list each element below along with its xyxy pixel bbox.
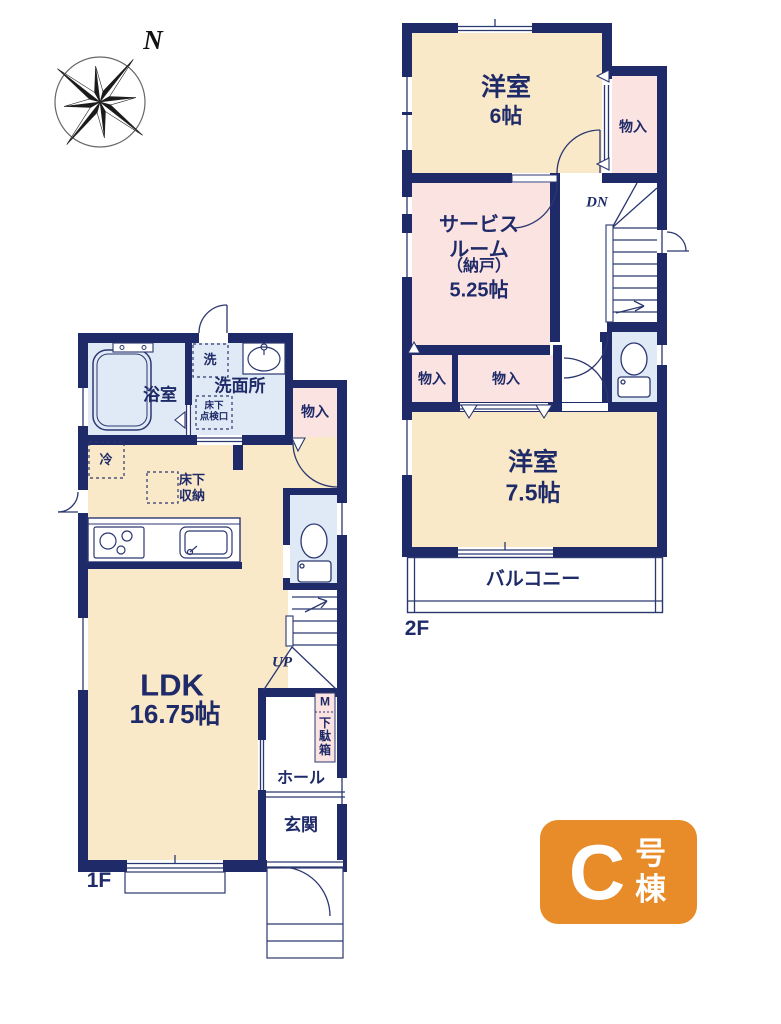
closet-1f-label: 物入 bbox=[301, 403, 329, 421]
stairs-down-label: DN bbox=[586, 194, 608, 213]
bathroom-label: 浴室 bbox=[143, 384, 177, 405]
floorplan-page: N 洋室 6帖 物入 サービス ルーム （納戸） 5.25帖 DN 物入 物入 … bbox=[0, 0, 781, 1024]
washer-label: 洗 bbox=[203, 352, 216, 368]
entrance-door-arc bbox=[281, 867, 330, 916]
service-room-area-label: 5.25帖 bbox=[450, 279, 509, 304]
floor2-label: 2F bbox=[405, 616, 430, 642]
fridge-label: 冷 bbox=[99, 452, 112, 468]
closet-top-label: 物入 bbox=[619, 118, 647, 136]
unit-badge-letter: C bbox=[569, 833, 625, 911]
bedroom6-area-label: 6帖 bbox=[490, 104, 523, 130]
hall-label: ホール bbox=[277, 769, 325, 789]
kitchen-counter-icon bbox=[88, 518, 242, 569]
shoe-cabinet-label: 下駄箱 bbox=[318, 717, 332, 757]
compass-north-label: N bbox=[143, 24, 163, 58]
bedroom6-name-label: 洋室 bbox=[481, 72, 531, 103]
closet-b-label: 物入 bbox=[492, 370, 520, 388]
entrance-label: 玄関 bbox=[284, 814, 318, 835]
floor-2f-plan bbox=[402, 19, 689, 613]
stairs-up-label: UP bbox=[272, 654, 292, 673]
closet-a-label: 物入 bbox=[418, 370, 446, 388]
entrance-porch bbox=[267, 868, 343, 958]
washroom-label: 洗面所 bbox=[215, 375, 266, 396]
underfloor-storage-label: 床下 収納 bbox=[179, 472, 205, 505]
ldk-area-label: 16.75帖 bbox=[129, 698, 220, 731]
stairs-down-icon bbox=[606, 183, 657, 322]
terrace bbox=[125, 872, 225, 893]
unit-badge: C 号棟 bbox=[540, 820, 697, 924]
service-room-subname-label: （納戸） bbox=[447, 257, 511, 277]
service-room-name-label: サービス ルーム bbox=[439, 213, 519, 263]
bedroom75-area-label: 7.5帖 bbox=[506, 479, 561, 508]
inspection-hatch-label: 床下 点検口 bbox=[200, 401, 229, 424]
meter-label: M bbox=[320, 695, 330, 710]
unit-badge-suffix: 号棟 bbox=[635, 836, 668, 907]
floor1-label: 1F bbox=[87, 868, 112, 894]
washbasin-icon bbox=[243, 343, 285, 374]
bedroom75-name-label: 洋室 bbox=[508, 447, 558, 478]
balcony-label: バルコニー bbox=[486, 568, 581, 592]
